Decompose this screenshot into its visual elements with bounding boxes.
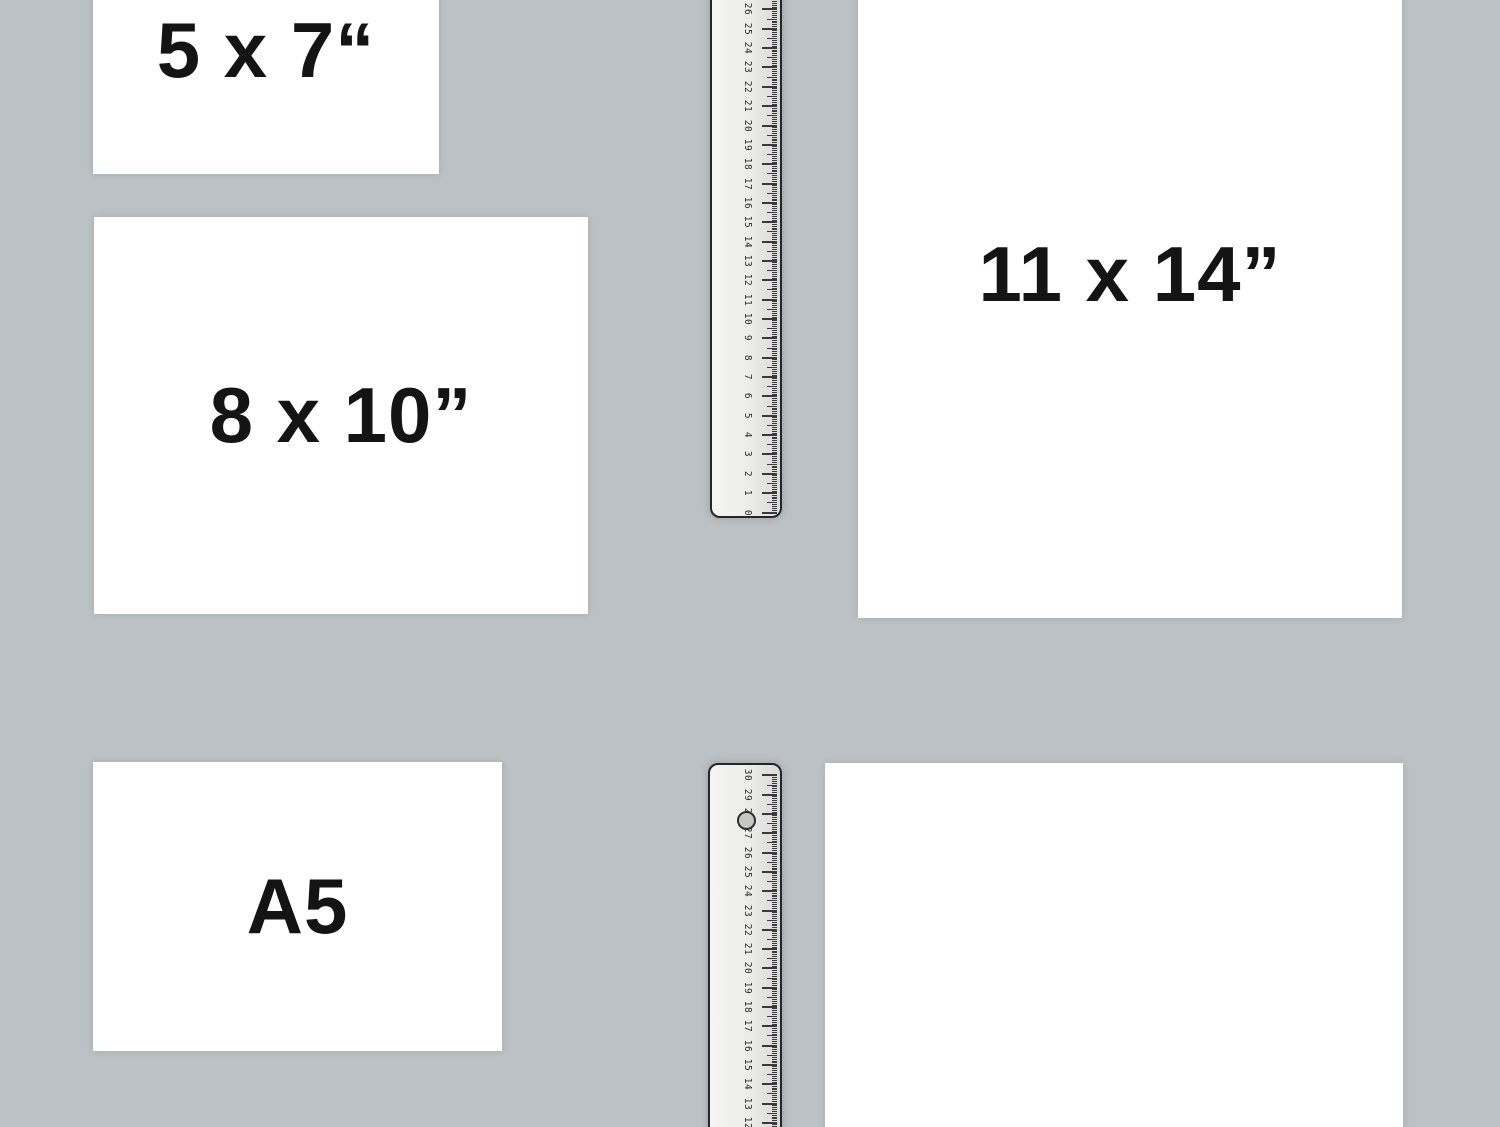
mm-tick [772, 966, 778, 967]
mm-tick [772, 326, 778, 327]
mm-tick [772, 373, 778, 374]
mm-tick [772, 214, 778, 215]
mm-tick [772, 1118, 778, 1119]
mm-tick [772, 171, 778, 172]
mm-tick [772, 993, 778, 994]
mm-tick [772, 846, 778, 847]
ruler-hang-hole [737, 811, 756, 830]
mm-tick [772, 1088, 778, 1089]
half-cm-tick [767, 804, 777, 805]
mm-tick [772, 63, 778, 64]
size-rect-unlabeled [825, 763, 1403, 1127]
mm-tick [772, 800, 778, 801]
mm-tick [772, 408, 778, 409]
mm-tick [772, 1012, 778, 1013]
mm-tick [772, 960, 778, 961]
mm-tick [772, 229, 778, 230]
mm-tick [772, 885, 778, 886]
ruler-number-17: 17 [742, 176, 752, 192]
mm-tick [772, 71, 778, 72]
mm-tick [772, 42, 778, 43]
mm-tick [772, 191, 778, 192]
mm-tick [772, 30, 778, 31]
mm-tick [772, 839, 778, 840]
cm-tick [762, 241, 777, 243]
mm-tick [772, 827, 778, 828]
mm-tick [772, 111, 778, 112]
cm-tick [762, 1122, 777, 1124]
mm-tick [772, 1111, 778, 1112]
mm-tick [772, 392, 778, 393]
mm-tick [772, 100, 778, 101]
mm-tick [772, 384, 778, 385]
cm-tick [762, 794, 777, 796]
ruler-number-16: 16 [742, 195, 752, 211]
cm-tick [762, 299, 777, 301]
half-cm-tick [767, 1016, 777, 1017]
mm-tick [772, 979, 778, 980]
mm-tick [772, 877, 778, 878]
mm-tick [772, 1076, 778, 1077]
half-cm-tick [767, 1093, 777, 1094]
mm-tick [772, 301, 778, 302]
mm-tick [772, 40, 778, 41]
mm-tick [772, 286, 778, 287]
mm-tick [772, 75, 778, 76]
ruler-number-24: 24 [742, 40, 752, 56]
mm-tick [772, 46, 778, 47]
mm-tick [772, 1, 778, 2]
mm-tick [772, 817, 778, 818]
mm-tick [772, 113, 778, 114]
mm-tick [772, 442, 778, 443]
mm-tick [772, 970, 778, 971]
mm-tick [772, 429, 778, 430]
mm-tick [772, 1107, 778, 1108]
mm-tick [772, 26, 778, 27]
mm-tick [772, 245, 778, 246]
size-rect-8x10: 8 x 10” [94, 217, 588, 614]
mm-tick [772, 854, 778, 855]
mm-tick [772, 1097, 778, 1098]
cm-tick [762, 163, 777, 165]
mm-tick [772, 168, 778, 169]
mm-tick [772, 835, 778, 836]
mm-tick [772, 815, 778, 816]
ruler-number-1: 1 [742, 485, 752, 501]
mm-tick [772, 73, 778, 74]
mm-tick [772, 411, 778, 412]
mm-tick [772, 344, 778, 345]
mm-tick [772, 3, 778, 4]
mm-tick [772, 181, 778, 182]
mm-tick [772, 1005, 778, 1006]
mm-tick [772, 1115, 778, 1116]
mm-tick [772, 1080, 778, 1081]
half-cm-tick [767, 444, 777, 445]
mm-tick [772, 32, 778, 33]
mm-tick [772, 346, 778, 347]
cm-tick [762, 86, 777, 88]
mm-tick [772, 1043, 778, 1044]
mm-tick [772, 98, 778, 99]
half-cm-tick [767, 212, 777, 213]
mm-tick [772, 80, 778, 81]
ruler-number-4: 4 [742, 427, 752, 443]
mm-tick [772, 284, 778, 285]
mm-tick [772, 481, 778, 482]
mm-tick [772, 941, 778, 942]
mm-tick [772, 812, 778, 813]
ruler-number-10: 10 [742, 311, 752, 327]
mm-tick [772, 792, 778, 793]
mm-tick [772, 50, 778, 51]
mm-tick [772, 1072, 778, 1073]
ruler-number-16: 16 [742, 1038, 752, 1054]
mm-tick [772, 841, 778, 842]
mm-tick [772, 421, 778, 422]
half-cm-tick [767, 289, 777, 290]
half-cm-tick [767, 862, 777, 863]
mm-tick [772, 1062, 778, 1063]
mm-tick [772, 61, 778, 62]
mm-tick [772, 307, 778, 308]
mm-tick [772, 995, 778, 996]
mm-tick [772, 266, 778, 267]
mm-tick [772, 976, 778, 977]
mm-tick [772, 139, 778, 140]
ruler-number-9: 9 [742, 330, 752, 346]
size-label-a5: A5 [247, 861, 349, 952]
ruler-number-14: 14 [742, 1076, 752, 1092]
mm-tick [772, 129, 778, 130]
mm-tick [772, 972, 778, 973]
mm-tick [772, 467, 778, 468]
mm-tick [772, 7, 778, 8]
mm-tick [772, 44, 778, 45]
half-cm-tick [767, 958, 777, 959]
mm-tick [772, 951, 778, 952]
mm-tick [772, 1061, 778, 1062]
mm-tick [772, 210, 778, 211]
mm-tick [772, 943, 778, 944]
ruler-number-29: 29 [742, 787, 752, 803]
mm-tick [772, 11, 778, 12]
mm-tick [772, 927, 778, 928]
mm-tick [772, 837, 778, 838]
mm-tick [772, 947, 778, 948]
cm-tick [762, 105, 777, 107]
mm-tick [772, 1001, 778, 1002]
cm-tick [762, 929, 777, 931]
mm-tick [772, 883, 778, 884]
mm-tick [772, 322, 778, 323]
mm-tick [772, 460, 778, 461]
mm-tick [772, 781, 778, 782]
mm-tick [772, 394, 778, 395]
mm-tick [772, 1082, 778, 1083]
mm-tick [772, 22, 778, 23]
size-label-11x14: 11 x 14” [979, 229, 1282, 320]
cm-tick [762, 1083, 777, 1085]
mm-tick [772, 471, 778, 472]
cm-tick [762, 221, 777, 223]
mm-tick [772, 1014, 778, 1015]
cm-tick [762, 774, 777, 776]
mm-tick [772, 224, 778, 225]
mm-tick [772, 65, 778, 66]
ruler-number-22: 22 [742, 79, 752, 95]
half-cm-tick [767, 1055, 777, 1056]
mm-tick [772, 423, 778, 424]
mm-tick [772, 274, 778, 275]
mm-tick [772, 916, 778, 917]
half-cm-tick [767, 231, 777, 232]
mm-tick [772, 1057, 778, 1058]
mm-tick [772, 187, 778, 188]
half-cm-tick [767, 978, 777, 979]
half-cm-tick [767, 270, 777, 271]
mm-tick [772, 497, 778, 498]
mm-tick [772, 228, 778, 229]
ruler-number-12: 12 [742, 1115, 752, 1127]
mm-tick [772, 150, 778, 151]
mm-tick [772, 127, 778, 128]
cm-tick [762, 492, 777, 494]
mm-tick [772, 964, 778, 965]
mm-tick [772, 218, 778, 219]
mm-tick [772, 1041, 778, 1042]
ruler-number-0: 0 [742, 505, 752, 519]
cm-tick [762, 473, 777, 475]
mm-tick [772, 498, 778, 499]
mm-tick [772, 233, 778, 234]
cm-tick [762, 967, 777, 969]
mm-tick [772, 954, 778, 955]
cm-tick [762, 852, 777, 854]
mm-tick [772, 419, 778, 420]
mm-tick [772, 158, 778, 159]
mm-tick [772, 291, 778, 292]
mm-tick [772, 262, 778, 263]
mm-tick [772, 1070, 778, 1071]
mm-tick [772, 226, 778, 227]
mm-tick [772, 466, 778, 467]
ruler-number-13: 13 [742, 1096, 752, 1112]
mm-tick [772, 257, 778, 258]
mm-tick [772, 390, 778, 391]
half-cm-tick [767, 193, 777, 194]
ruler-number-15: 15 [742, 1057, 752, 1073]
mm-tick [772, 259, 778, 260]
ruler-number-23: 23 [742, 903, 752, 919]
mm-tick [772, 506, 778, 507]
half-cm-tick [767, 19, 777, 20]
mm-tick [772, 790, 778, 791]
half-cm-tick [767, 1074, 777, 1075]
half-cm-tick [767, 77, 777, 78]
mm-tick [772, 962, 778, 963]
mm-tick [772, 313, 778, 314]
mm-tick [772, 991, 778, 992]
mm-tick [772, 247, 778, 248]
mm-tick [772, 819, 778, 820]
ruler-number-20: 20 [742, 118, 752, 134]
mm-tick [772, 404, 778, 405]
cm-tick [762, 1006, 777, 1008]
mm-tick [772, 123, 778, 124]
mm-tick [772, 359, 778, 360]
mm-tick [772, 413, 778, 414]
mm-tick [772, 142, 778, 143]
mm-tick [772, 802, 778, 803]
mm-tick [772, 906, 778, 907]
mm-tick [772, 510, 778, 511]
mm-tick [772, 249, 778, 250]
cm-tick [762, 453, 777, 455]
mm-tick [772, 311, 778, 312]
mm-tick [772, 1068, 778, 1069]
mm-tick [772, 895, 778, 896]
ruler-number-7: 7 [742, 369, 752, 385]
half-cm-tick [767, 406, 777, 407]
mm-tick [772, 152, 778, 153]
size-rect-11x14: 11 x 14” [858, 0, 1402, 618]
mm-tick [772, 1099, 778, 1100]
mm-tick [772, 427, 778, 428]
half-cm-tick [767, 38, 777, 39]
mm-tick [772, 860, 778, 861]
mm-tick [772, 402, 778, 403]
mm-tick [772, 821, 778, 822]
mm-tick [772, 355, 778, 356]
mm-tick [772, 17, 778, 18]
mm-tick [772, 437, 778, 438]
mm-tick [772, 810, 778, 811]
mm-tick [772, 160, 778, 161]
mm-tick [772, 1003, 778, 1004]
cm-tick [762, 66, 777, 68]
mm-tick [772, 896, 778, 897]
mm-tick [772, 462, 778, 463]
mm-tick [772, 361, 778, 362]
half-cm-tick [767, 881, 777, 882]
mm-tick [772, 779, 778, 780]
ruler-number-18: 18 [742, 156, 752, 172]
mm-tick [772, 140, 778, 141]
ruler-number-25: 25 [742, 864, 752, 880]
mm-tick [772, 1124, 778, 1125]
mm-tick [772, 79, 778, 80]
mm-tick [772, 146, 778, 147]
mm-tick [772, 208, 778, 209]
cm-tick [762, 871, 777, 873]
mm-tick [772, 349, 778, 350]
mm-tick [772, 1066, 778, 1067]
mm-tick [772, 1101, 778, 1102]
mm-tick [772, 108, 778, 109]
half-cm-tick [767, 154, 777, 155]
mm-tick [772, 200, 778, 201]
mm-tick [772, 931, 778, 932]
mm-tick [772, 1039, 778, 1040]
mm-tick [772, 92, 778, 93]
ruler-number-13: 13 [742, 253, 752, 269]
mm-tick [772, 104, 778, 105]
cm-tick [762, 813, 777, 815]
mm-tick [772, 956, 778, 957]
cm-tick [762, 890, 777, 892]
mm-tick [772, 179, 778, 180]
mm-tick [772, 937, 778, 938]
mm-tick [772, 450, 778, 451]
mm-tick [772, 55, 778, 56]
mm-tick [772, 1053, 778, 1054]
mm-tick [772, 1095, 778, 1096]
ruler-number-22: 22 [742, 922, 752, 938]
mm-tick [772, 887, 778, 888]
mm-tick [772, 88, 778, 89]
ruler-number-19: 19 [742, 980, 752, 996]
mm-tick [772, 342, 778, 343]
mm-tick [772, 170, 778, 171]
mm-tick [772, 24, 778, 25]
ruler-number-26: 26 [742, 1, 752, 17]
mm-tick [772, 197, 778, 198]
mm-tick [772, 458, 778, 459]
mm-tick [772, 282, 778, 283]
mm-tick [772, 398, 778, 399]
mm-tick [772, 369, 778, 370]
mm-tick [772, 13, 778, 14]
mm-tick [772, 90, 778, 91]
ruler-number-20: 20 [742, 960, 752, 976]
mm-tick [772, 276, 778, 277]
mm-tick [772, 195, 778, 196]
mm-tick [772, 856, 778, 857]
mm-tick [772, 82, 778, 83]
mm-tick [772, 51, 778, 52]
mm-tick [772, 378, 778, 379]
mm-tick [772, 94, 778, 95]
ruler-number-5: 5 [742, 408, 752, 424]
mm-tick [772, 189, 778, 190]
mm-tick [772, 924, 778, 925]
ruler-number-21: 21 [742, 98, 752, 114]
mm-tick [772, 204, 778, 205]
ruler-number-3: 3 [742, 446, 752, 462]
mm-tick [772, 255, 778, 256]
cm-tick [762, 415, 777, 417]
mm-tick [772, 999, 778, 1000]
half-cm-tick [767, 425, 777, 426]
ruler-number-24: 24 [742, 883, 752, 899]
mm-tick [772, 922, 778, 923]
mm-tick [772, 989, 778, 990]
mm-tick [772, 400, 778, 401]
mm-tick [772, 1059, 778, 1060]
mm-tick [772, 866, 778, 867]
mm-tick [772, 278, 778, 279]
mm-tick [772, 137, 778, 138]
mm-tick [772, 351, 778, 352]
half-cm-tick [767, 96, 777, 97]
mm-tick [772, 456, 778, 457]
ruler-number-14: 14 [742, 234, 752, 250]
cm-tick [762, 337, 777, 339]
mm-tick [772, 1022, 778, 1023]
mm-tick [772, 388, 778, 389]
